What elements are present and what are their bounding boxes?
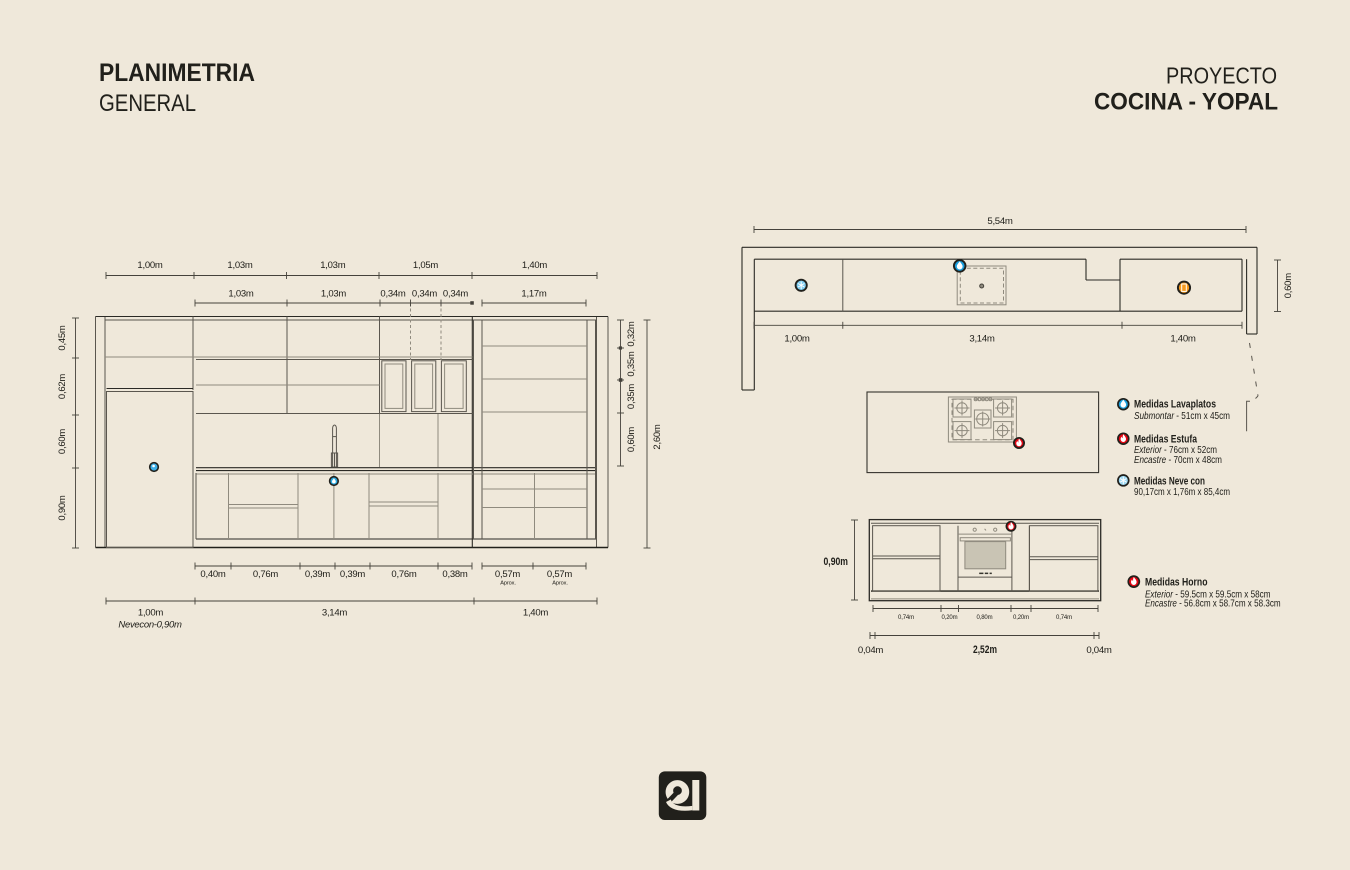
svg-text:0,40m: 0,40m (200, 569, 225, 580)
svg-text:0,90m: 0,90m (824, 556, 849, 568)
svg-text:Medidas Estufa: Medidas Estufa (1134, 433, 1197, 445)
svg-text:0,35m: 0,35m (626, 384, 637, 409)
svg-text:2,52m: 2,52m (973, 644, 997, 656)
svg-text:PROYECTO: PROYECTO (1166, 63, 1277, 89)
svg-text:0,04m: 0,04m (1086, 645, 1111, 656)
svg-text:0,20m: 0,20m (942, 615, 958, 621)
svg-text:0,39m: 0,39m (340, 569, 365, 580)
svg-text:0,74m: 0,74m (1056, 615, 1072, 621)
svg-text:1,40m: 1,40m (522, 260, 547, 271)
svg-text:0,80m: 0,80m (977, 615, 993, 621)
svg-text:Encastre - 70cm x 48cm: Encastre - 70cm x 48cm (1134, 455, 1222, 466)
svg-text:5,54m: 5,54m (987, 216, 1012, 227)
svg-text:0,60m: 0,60m (57, 429, 68, 454)
svg-text:0,90m: 0,90m (57, 495, 68, 520)
svg-text:1,03m: 1,03m (227, 260, 252, 271)
svg-text:0,60m: 0,60m (1283, 273, 1294, 298)
svg-text:0,34m: 0,34m (412, 289, 437, 300)
svg-text:0,60m: 0,60m (626, 427, 637, 452)
svg-text:90,17cm x 1,76m x 85,4cm: 90,17cm x 1,76m x 85,4cm (1134, 487, 1230, 498)
svg-text:0,04m: 0,04m (858, 645, 883, 656)
svg-text:1,40m: 1,40m (1170, 334, 1195, 345)
svg-text:PLANIMETRIA: PLANIMETRIA (99, 59, 255, 87)
svg-text:Medidas Neve con: Medidas Neve con (1134, 475, 1205, 487)
svg-text:0,35m: 0,35m (626, 351, 637, 376)
svg-text:Submontar - 51cm x 45cm: Submontar - 51cm x 45cm (1134, 411, 1230, 422)
svg-text:0,74m: 0,74m (898, 615, 914, 621)
svg-text:3,14m: 3,14m (969, 334, 994, 345)
svg-text:Nevecon-0,90m: Nevecon-0,90m (118, 620, 182, 631)
svg-text:1,03m: 1,03m (228, 289, 253, 300)
svg-text:Medidas Horno: Medidas Horno (1145, 577, 1208, 589)
svg-text:0,20m: 0,20m (1013, 615, 1029, 621)
svg-text:GENERAL: GENERAL (99, 90, 196, 117)
svg-text:1,00m: 1,00m (137, 260, 162, 271)
svg-text:0,76m: 0,76m (391, 569, 416, 580)
svg-text:1,05m: 1,05m (413, 260, 438, 271)
svg-text:Medidas Lavaplatos: Medidas Lavaplatos (1134, 399, 1216, 411)
svg-text:1,17m: 1,17m (521, 289, 546, 300)
svg-text:2,60m: 2,60m (652, 424, 663, 449)
svg-text:1,03m: 1,03m (321, 289, 346, 300)
svg-text:Aprox.: Aprox. (500, 581, 516, 587)
svg-text:1,40m: 1,40m (523, 608, 548, 619)
svg-text:3,14m: 3,14m (322, 608, 347, 619)
svg-text:1,00m: 1,00m (138, 608, 163, 619)
svg-text:0,38m: 0,38m (442, 569, 467, 580)
svg-text:0,34m: 0,34m (443, 289, 468, 300)
svg-text:0,62m: 0,62m (57, 374, 68, 399)
svg-text:0,34m: 0,34m (380, 289, 405, 300)
svg-text:Encastre - 56.8cm x 58.7cm x 5: Encastre - 56.8cm x 58.7cm x 58.3cm (1145, 599, 1281, 610)
svg-text:0,76m: 0,76m (253, 569, 278, 580)
svg-text:Aprox.: Aprox. (552, 581, 568, 587)
svg-text:0,39m: 0,39m (305, 569, 330, 580)
svg-text:COCINA - YOPAL: COCINA - YOPAL (1094, 89, 1278, 116)
svg-text:1,00m: 1,00m (784, 334, 809, 345)
svg-text:0,57m: 0,57m (495, 569, 520, 580)
svg-text:0,57m: 0,57m (547, 569, 572, 580)
svg-text:1,03m: 1,03m (320, 260, 345, 271)
svg-text:0,45m: 0,45m (57, 325, 68, 350)
svg-text:0,32m: 0,32m (626, 321, 637, 346)
